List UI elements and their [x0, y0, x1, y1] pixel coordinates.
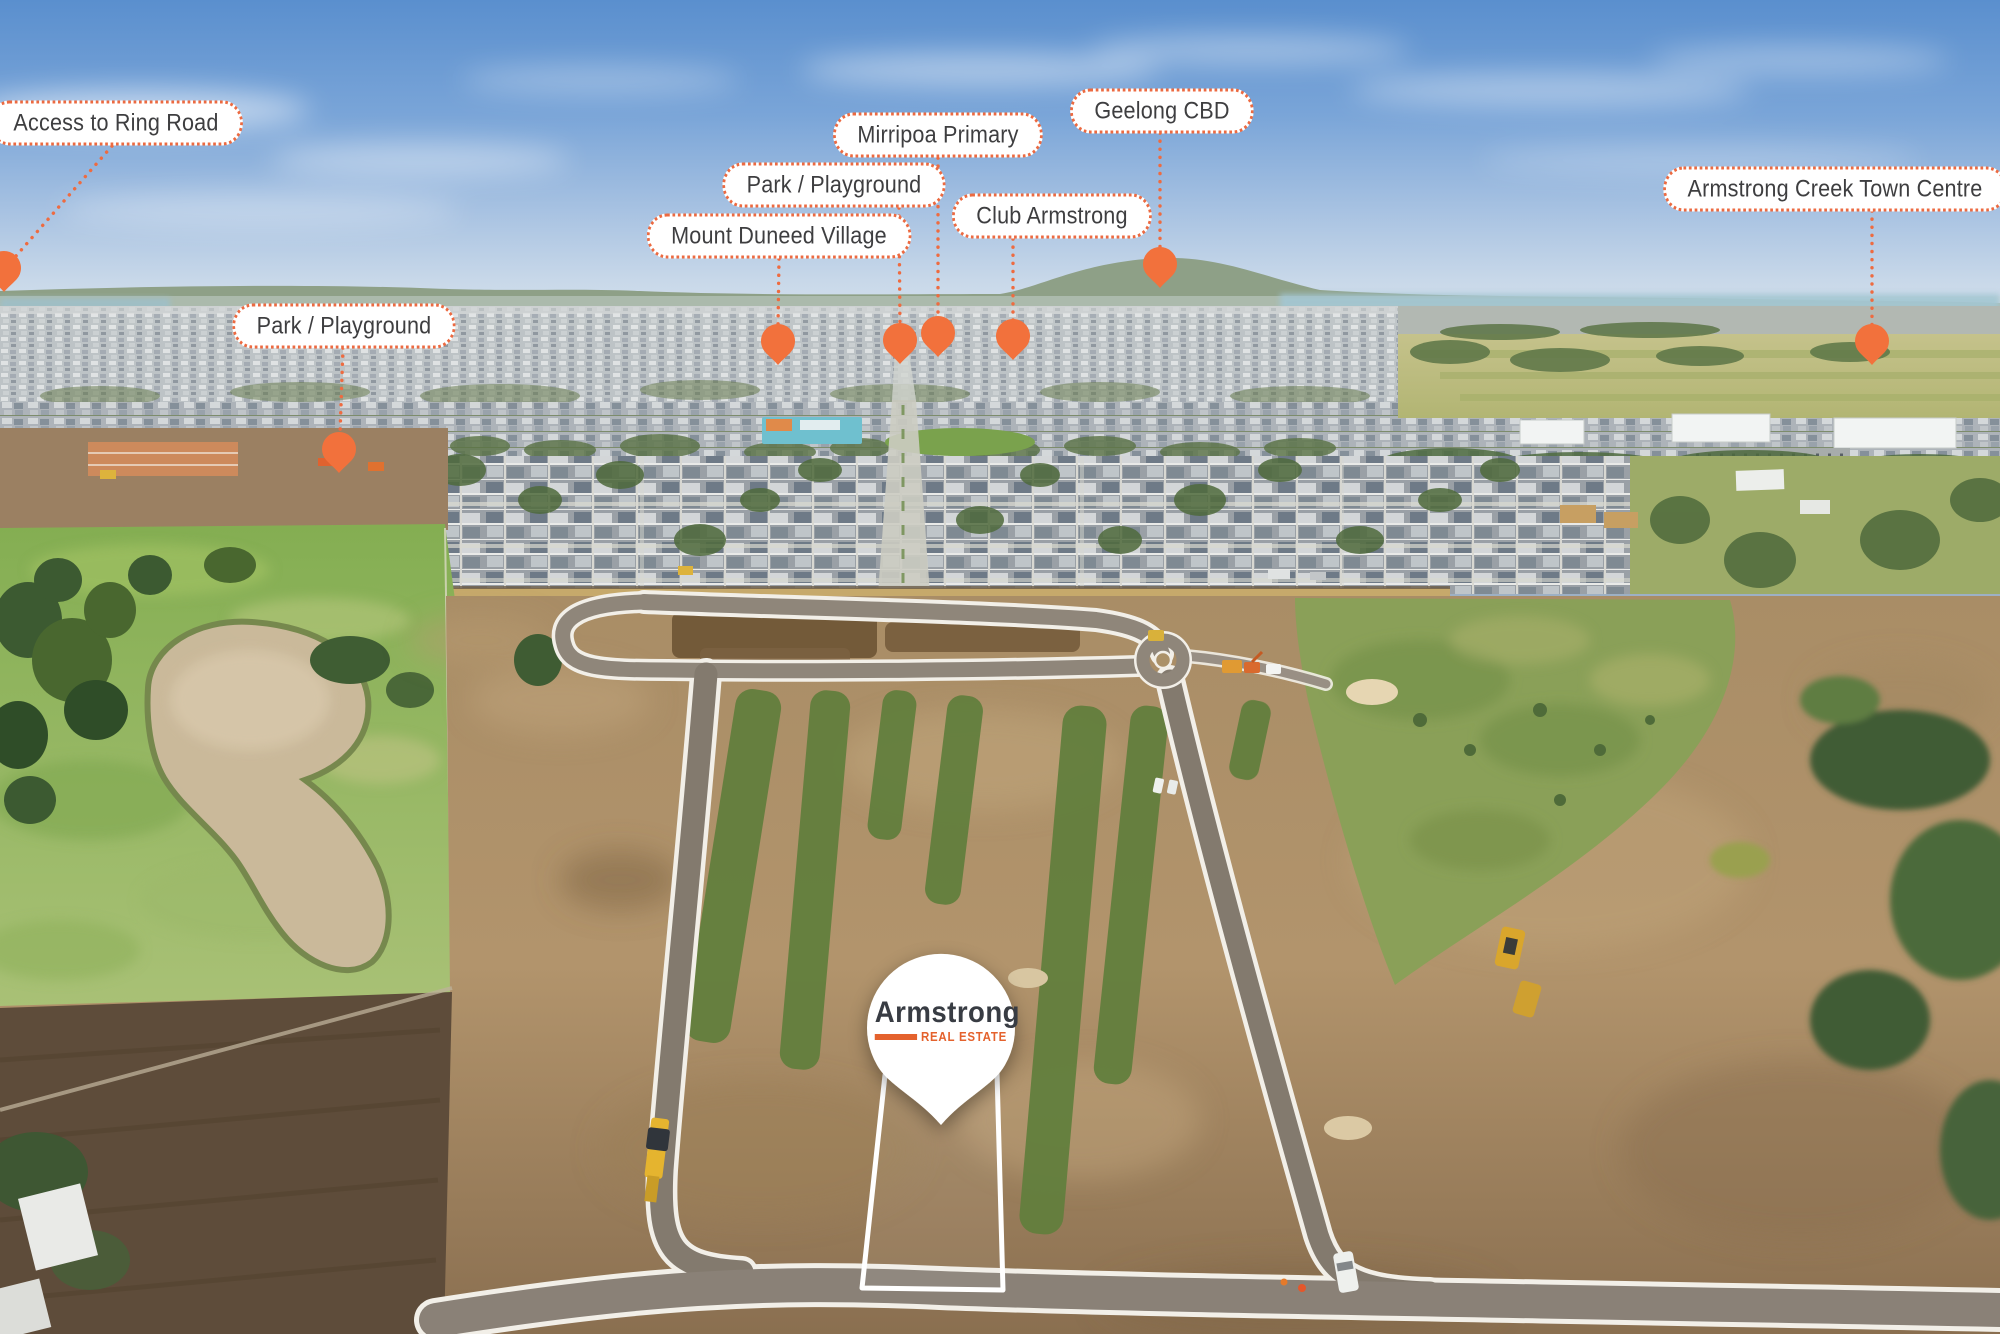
white-van	[1266, 664, 1281, 674]
map-label-park-playground-central: Park / Playground	[722, 163, 945, 208]
excavator	[100, 470, 116, 479]
map-label-text: Park / Playground	[257, 312, 432, 340]
roller	[1148, 630, 1164, 641]
map-label-club-armstrong: Club Armstrong	[952, 194, 1152, 239]
map-label-park-playground-west: Park / Playground	[232, 304, 455, 349]
excavator	[368, 462, 384, 471]
bottom-left-dirt	[0, 988, 452, 1334]
logo-bar	[875, 1034, 917, 1040]
map-label-text: Armstrong Creek Town Centre	[1688, 175, 1983, 203]
roundabout	[1136, 633, 1190, 687]
map-label-text: Park / Playground	[747, 171, 922, 199]
brand-tagline: REAL ESTATE	[921, 1031, 1007, 1044]
map-label-text: Club Armstrong	[976, 202, 1127, 230]
map-label-text: Mount Duneed Village	[671, 222, 887, 250]
brand-name: Armstrong	[875, 998, 1007, 1028]
aerial-photo-stage: Access to Ring Road Park / Playground Mo…	[0, 0, 2000, 1334]
brand-logo: Armstrong REAL ESTATE	[875, 998, 1007, 1044]
map-label-geelong-cbd: Geelong CBD	[1070, 89, 1254, 134]
map-label-text: Geelong CBD	[1094, 97, 1229, 125]
map-label-town-centre: Armstrong Creek Town Centre	[1663, 167, 2000, 212]
map-label-mount-duneed-village: Mount Duneed Village	[647, 214, 911, 259]
worker	[1298, 1284, 1306, 1292]
sky	[0, 0, 2000, 330]
left-clearing	[0, 428, 448, 530]
map-label-mirripoa-primary: Mirripoa Primary	[833, 113, 1043, 158]
loader	[1222, 660, 1242, 673]
map-label-text: Mirripoa Primary	[857, 121, 1018, 149]
map-label-text: Access to Ring Road	[13, 109, 218, 137]
worker	[1281, 1279, 1288, 1286]
map-label-ring-road: Access to Ring Road	[0, 101, 243, 146]
